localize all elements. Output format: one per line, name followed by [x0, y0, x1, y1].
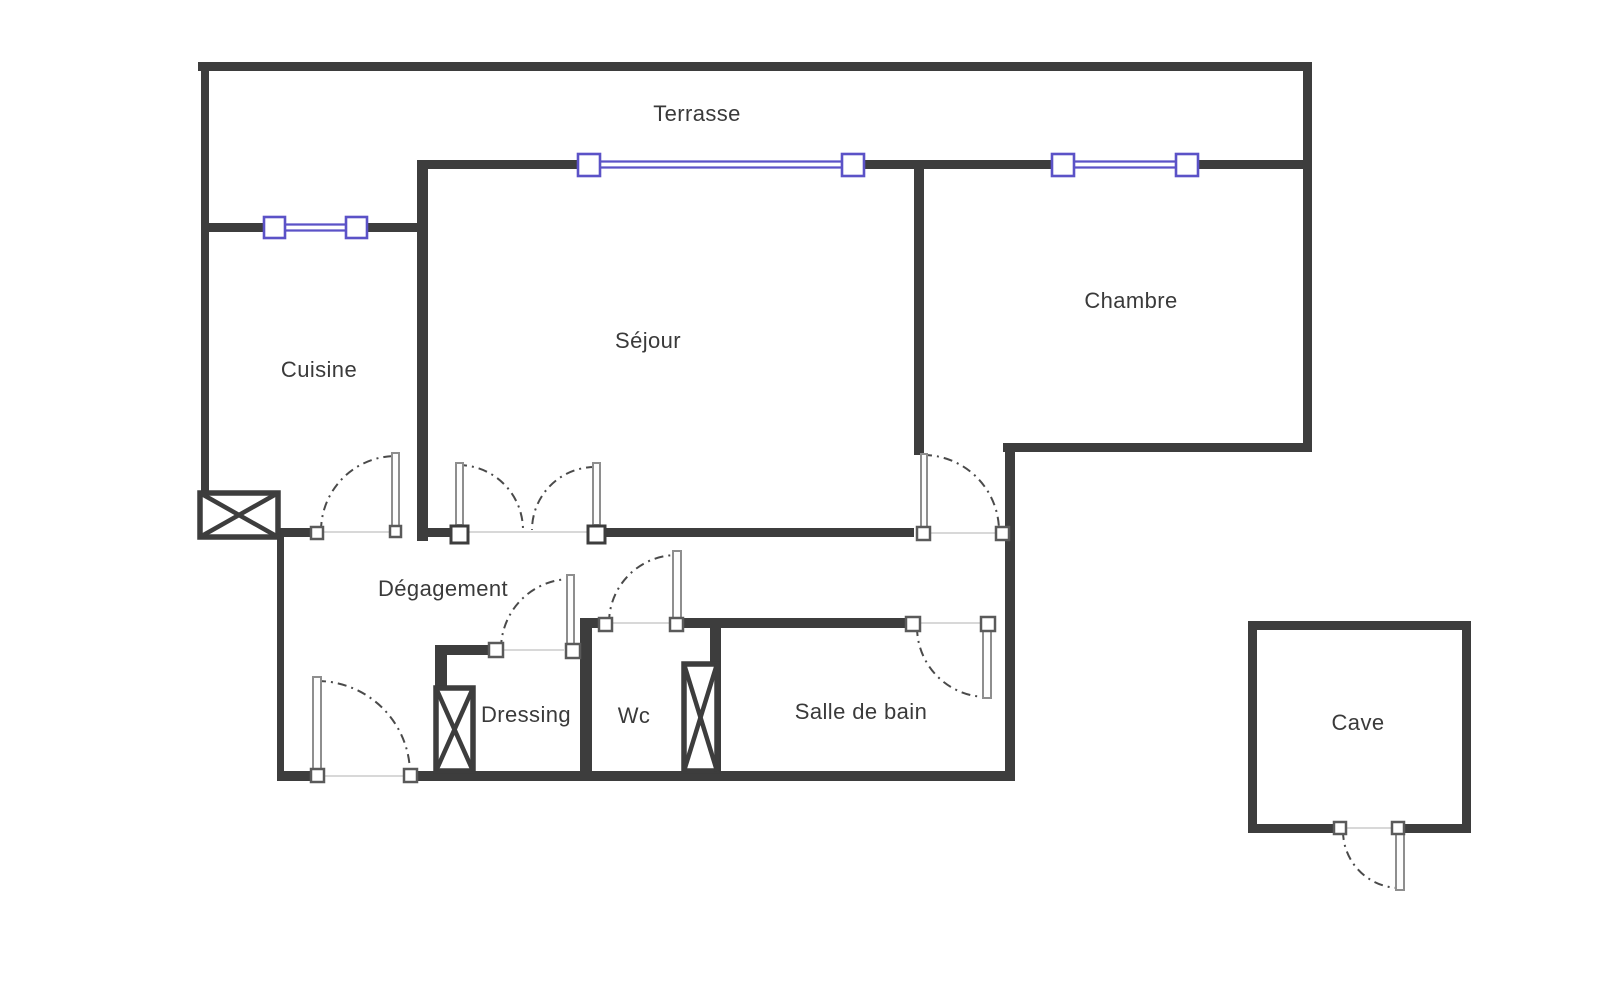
door-leaf-dressing [567, 575, 574, 645]
window-chambre [1052, 154, 1198, 176]
wall-sejour-chambre [914, 160, 924, 455]
wall-degagement-north-b [428, 528, 452, 537]
door-swing-arc-salle-de-bain [917, 627, 987, 697]
door-post [906, 617, 920, 631]
door-post [311, 527, 323, 539]
door-swing-arc-wc [609, 555, 677, 623]
door-post [599, 618, 612, 631]
door-post [404, 769, 417, 782]
wall-cuisine-sejour [417, 160, 428, 541]
wall-east-lower [1005, 443, 1015, 781]
wall-cave-right [1462, 621, 1471, 833]
duct-symbol-dressing [436, 688, 473, 771]
door-leaf-sejour-left [456, 463, 463, 525]
wall-chambre-south [1003, 443, 1312, 452]
window-end-post [842, 154, 864, 176]
door-leaf-salle-de-bain [983, 629, 991, 698]
wall-outer-right [1303, 62, 1312, 452]
door-swing-arc-sejour-right [532, 467, 595, 530]
window-cuisine [264, 217, 367, 238]
window-end-post [1176, 154, 1198, 176]
room-label-cuisine: Cuisine [281, 357, 357, 383]
wall-dressing-wc [580, 618, 592, 771]
window-end-post [1052, 154, 1074, 176]
door-post [588, 526, 605, 543]
door-leaf-wc [673, 551, 681, 620]
window-end-post [578, 154, 600, 176]
floor-plan-drawing [0, 0, 1600, 991]
wall-dressing-north [435, 645, 497, 655]
door-post [1392, 822, 1404, 834]
door-leaf-entrance [313, 677, 321, 770]
wall-degagement-west [277, 528, 284, 781]
window-sejour [578, 154, 864, 176]
door-swing-arc-cave [1343, 831, 1400, 888]
door-swing-arc-chambre [923, 455, 999, 531]
door-post [981, 617, 995, 631]
room-label-sejour: Séjour [615, 328, 681, 354]
wall-outer-left [201, 62, 209, 497]
duct-symbol-cuisine [200, 493, 278, 537]
door-posts [311, 526, 1404, 834]
wall-cave-top [1248, 621, 1471, 630]
room-label-degagement: Dégagement [378, 576, 508, 602]
door-leaf-cave [1396, 833, 1404, 890]
door-post [917, 527, 930, 540]
room-label-wc: Wc [618, 703, 651, 729]
door-swing-arc-sejour-left [458, 465, 523, 530]
wall-degagement-north-c [603, 528, 914, 537]
wall-bottom-a [277, 771, 314, 781]
wall-chambre-north [1195, 160, 1312, 169]
window-end-post [264, 217, 285, 238]
floor-plan: Terrasse Cuisine Séjour Chambre Dégageme… [0, 0, 1600, 991]
door-post [996, 527, 1009, 540]
wall-cave-bottom-left [1248, 824, 1336, 833]
door-swing-arc-cuisine [321, 456, 396, 531]
window-end-post [346, 217, 367, 238]
door-post [451, 526, 468, 543]
duct-symbol-wc [684, 664, 717, 771]
room-label-cave: Cave [1332, 710, 1385, 736]
wall-sejour-north-a [417, 160, 580, 169]
door-leaves [313, 453, 1404, 890]
wall-outer-top [198, 62, 1312, 71]
door-post [566, 644, 580, 658]
door-leaf-sejour-right [593, 463, 600, 525]
room-label-dressing: Dressing [481, 702, 571, 728]
wall-cuisine-north-left [201, 223, 266, 232]
room-label-salle-de-bain: Salle de bain [795, 699, 927, 725]
door-post [489, 643, 503, 657]
wall-sejour-north-b [862, 160, 1054, 169]
room-label-chambre: Chambre [1084, 288, 1177, 314]
wall-degagement-north-a [280, 528, 313, 537]
door-leaf-chambre [921, 454, 927, 528]
door-leaf-cuisine [392, 453, 399, 528]
door-swings [317, 455, 1400, 888]
door-post [1334, 822, 1346, 834]
door-post [670, 618, 683, 631]
door-post [390, 526, 401, 537]
door-swing-arc-dressing [501, 579, 571, 649]
wall-cave-bottom-right [1404, 824, 1471, 833]
door-post [311, 769, 324, 782]
door-swing-arc-entrance [317, 681, 410, 774]
room-label-terrasse: Terrasse [653, 101, 741, 127]
wall-cave-left [1248, 621, 1257, 833]
